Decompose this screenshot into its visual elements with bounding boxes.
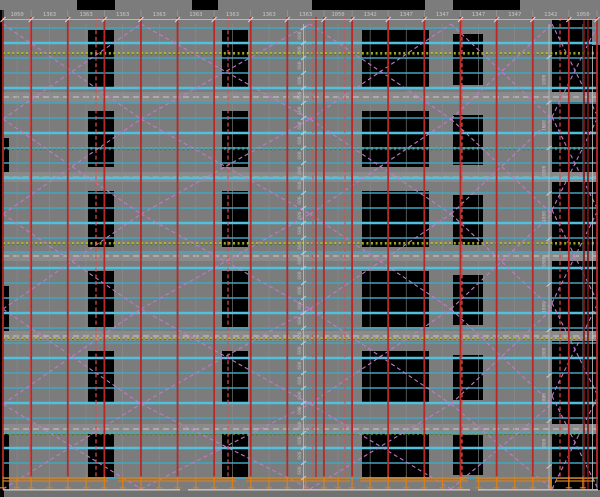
svg-text:600: 600: [297, 466, 303, 474]
svg-text:1347: 1347: [400, 12, 413, 18]
svg-text:600: 600: [297, 211, 303, 219]
svg-text:600: 600: [297, 376, 303, 384]
svg-text:1800: 1800: [542, 438, 548, 449]
svg-text:600: 600: [297, 61, 303, 69]
svg-text:600: 600: [297, 331, 303, 339]
svg-text:1800: 1800: [542, 347, 548, 358]
svg-text:1800: 1800: [542, 256, 548, 267]
svg-text:600: 600: [297, 151, 303, 159]
svg-text:600: 600: [297, 91, 303, 99]
svg-text:600: 600: [297, 46, 303, 54]
svg-text:600: 600: [297, 316, 303, 324]
svg-text:600: 600: [297, 421, 303, 429]
svg-text:1347: 1347: [472, 12, 485, 18]
svg-text:600: 600: [297, 106, 303, 114]
svg-text:1800: 1800: [542, 74, 548, 85]
scaffold-elevation-drawing: 1050136313631363136313631363136313631050…: [0, 0, 600, 497]
svg-text:600: 600: [297, 226, 303, 234]
svg-text:600: 600: [297, 301, 303, 309]
svg-text:1347: 1347: [436, 12, 449, 18]
svg-text:600: 600: [297, 361, 303, 369]
cad-viewport: 1050136313631363136313631363136313631050…: [0, 0, 600, 497]
svg-text:600: 600: [297, 121, 303, 129]
svg-text:1050: 1050: [10, 12, 23, 18]
svg-text:1050: 1050: [331, 12, 344, 18]
svg-text:1347: 1347: [508, 12, 521, 18]
svg-text:1800: 1800: [542, 120, 548, 131]
svg-text:600: 600: [297, 196, 303, 204]
svg-text:600: 600: [297, 241, 303, 249]
svg-text:600: 600: [297, 406, 303, 414]
svg-text:600: 600: [297, 256, 303, 264]
svg-text:1363: 1363: [153, 12, 166, 18]
svg-text:600: 600: [297, 436, 303, 444]
svg-text:1363: 1363: [43, 12, 56, 18]
svg-text:600: 600: [297, 271, 303, 279]
svg-text:1800: 1800: [542, 302, 548, 313]
svg-text:1050: 1050: [576, 12, 589, 18]
svg-text:1800: 1800: [542, 211, 548, 222]
svg-text:1363: 1363: [226, 12, 239, 18]
svg-text:1363: 1363: [262, 12, 275, 18]
svg-text:600: 600: [297, 76, 303, 84]
svg-text:600: 600: [297, 286, 303, 294]
svg-text:1363: 1363: [116, 12, 129, 18]
svg-text:600: 600: [297, 451, 303, 459]
svg-text:600: 600: [297, 181, 303, 189]
svg-text:1363: 1363: [79, 12, 92, 18]
svg-text:1800: 1800: [542, 393, 548, 404]
svg-text:1800: 1800: [542, 165, 548, 176]
svg-text:1342: 1342: [363, 12, 376, 18]
svg-text:600: 600: [297, 136, 303, 144]
svg-text:600: 600: [297, 391, 303, 399]
svg-text:600: 600: [297, 346, 303, 354]
svg-text:1363: 1363: [189, 12, 202, 18]
svg-text:600: 600: [297, 31, 303, 39]
svg-text:1363: 1363: [299, 12, 312, 18]
svg-text:1342: 1342: [544, 12, 557, 18]
svg-text:600: 600: [297, 166, 303, 174]
